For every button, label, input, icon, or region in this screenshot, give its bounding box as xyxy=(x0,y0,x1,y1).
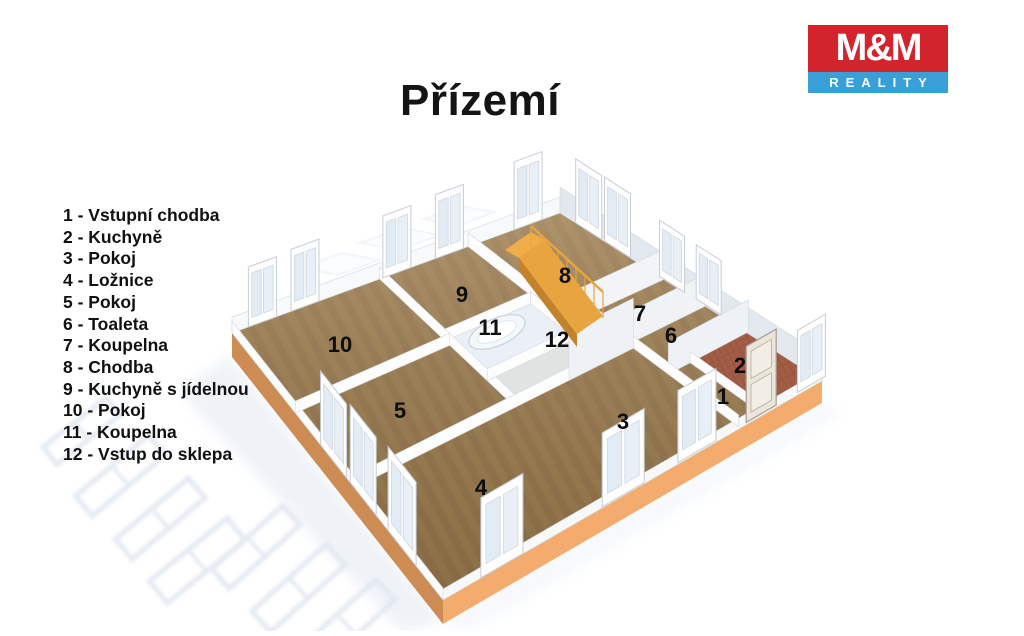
legend-item-4: 4 - Ložnice xyxy=(63,270,249,292)
legend-item-3: 3 - Pokoj xyxy=(63,248,249,270)
room-label-7: 7 xyxy=(634,301,646,326)
legend-item-8: 8 - Chodba xyxy=(63,357,249,379)
room-label-4: 4 xyxy=(475,475,488,500)
mm-reality-logo: M&M REALITY xyxy=(808,25,948,93)
window xyxy=(435,184,463,258)
window xyxy=(383,206,411,278)
window xyxy=(514,152,542,230)
room-label-8: 8 xyxy=(559,263,571,288)
legend-item-11: 11 - Koupelna xyxy=(63,422,249,444)
room-label-6: 6 xyxy=(665,323,677,348)
window xyxy=(248,257,276,327)
logo-bottom-text: REALITY xyxy=(808,72,948,93)
room-label-5: 5 xyxy=(394,398,406,423)
legend-item-10: 10 - Pokoj xyxy=(63,400,249,422)
legend-item-5: 5 - Pokoj xyxy=(63,292,249,314)
room-legend: 1 - Vstupní chodba 2 - Kuchyně 3 - Pokoj… xyxy=(63,205,249,465)
legend-item-2: 2 - Kuchyně xyxy=(63,227,249,249)
room-label-2: 2 xyxy=(734,353,746,378)
room-label-9: 9 xyxy=(456,282,468,307)
room-label-3: 3 xyxy=(617,409,629,434)
legend-item-6: 6 - Toaleta xyxy=(63,314,249,336)
window xyxy=(291,239,319,311)
room-label-12: 12 xyxy=(545,327,569,352)
page: Přízemí M&M REALITY 1 - Vstupní chodba 2… xyxy=(0,0,1024,631)
logo-top-text: M&M xyxy=(808,25,948,72)
legend-item-1: 1 - Vstupní chodba xyxy=(63,205,249,227)
room-label-10: 10 xyxy=(328,332,352,357)
legend-item-12: 12 - Vstup do sklepa xyxy=(63,444,249,466)
room-label-1: 1 xyxy=(717,384,729,409)
legend-item-9: 9 - Kuchyně s jídelnou xyxy=(63,379,249,401)
legend-item-7: 7 - Koupelna xyxy=(63,335,249,357)
room-label-11: 11 xyxy=(478,315,501,340)
